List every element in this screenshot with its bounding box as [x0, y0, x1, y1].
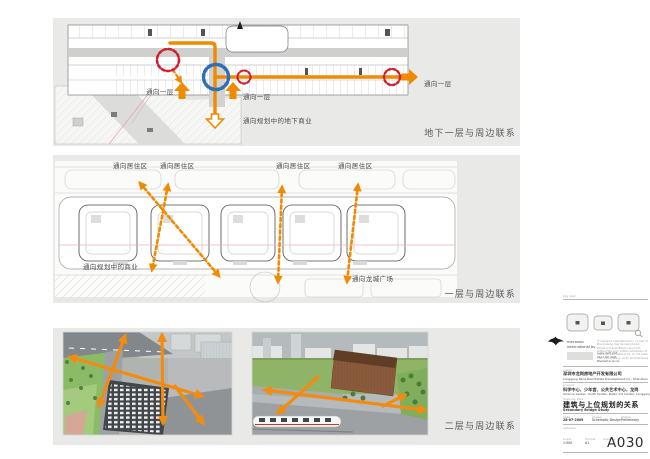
remarks-label: remarks: [563, 426, 576, 430]
date-value: 28-07-2009: [563, 418, 583, 422]
mecanoo-bird-logo-icon: [547, 335, 565, 347]
panel-level2: 二层与周边联系: [53, 328, 520, 445]
label-to-level1: 通向一层: [243, 94, 271, 101]
firm-address: oude delft 203 2611 HD delft the netherl…: [597, 352, 619, 363]
caption-level2: 二层与周边联系: [445, 423, 516, 432]
logo-placeholder-box: [567, 352, 593, 360]
caption-ground-level: 一层与周边联系: [445, 291, 516, 300]
label-to-level1: 通向一层: [424, 81, 452, 88]
render-aerial-left: [63, 332, 232, 435]
magnifier-icon: [635, 330, 642, 337]
format-value: A1: [585, 441, 589, 445]
panel-basement-level: 通向一层 通向一层 通向一层 通向规划中的地下商业 地下一层与周边联系: [53, 18, 520, 146]
firm-name-2: international bv: [567, 345, 595, 350]
label-to-planned-retail: 通向规划中的商业: [83, 264, 138, 271]
keyplan-label: key plan: [563, 294, 576, 298]
title-block: key plan mecanoo international bv © meca…: [545, 288, 650, 456]
phase-value: Schematic Design: [592, 418, 621, 422]
label-to-residential: 通向居住区: [160, 163, 195, 170]
client-name-en: Longgang Parie Real Estate Development C…: [563, 377, 648, 381]
scale-value: 1:500: [563, 441, 572, 445]
ground-site-plan: [55, 161, 457, 302]
drawing-title-en: Secondary Bridge Study: [563, 408, 609, 412]
label-to-underground-retail: 通向规划中的地下商业: [243, 118, 312, 125]
project-name-en: Science Center, Youth Center, Public Art…: [563, 392, 650, 396]
sheet-number: A030: [607, 435, 644, 451]
label-to-residential: 通向居住区: [338, 163, 373, 170]
panel-ground-level: 通向居住区 通向居住区 通向居住区 通向居住区 通向规划中的商业 通向龙城广场 …: [53, 155, 520, 303]
label-to-level1: 通向一层: [146, 89, 174, 96]
render-monorail-right: [252, 332, 428, 435]
caption-basement-level: 地下一层与周边联系: [424, 130, 516, 139]
status-value: Preliminary: [621, 418, 639, 422]
page: { "colors": { "accent_orange": "#F08A00"…: [0, 0, 650, 459]
label-to-residential: 通向居住区: [276, 163, 311, 170]
label-to-longcheng-square: 通向龙城广场: [352, 276, 393, 283]
basement-floor-plan: [68, 21, 408, 107]
ground-plan-diagram: [53, 155, 520, 303]
label-to-residential: 通向居住区: [113, 163, 148, 170]
key-plan-diagram: [566, 309, 646, 337]
address-line: the netherlands: [597, 360, 619, 364]
